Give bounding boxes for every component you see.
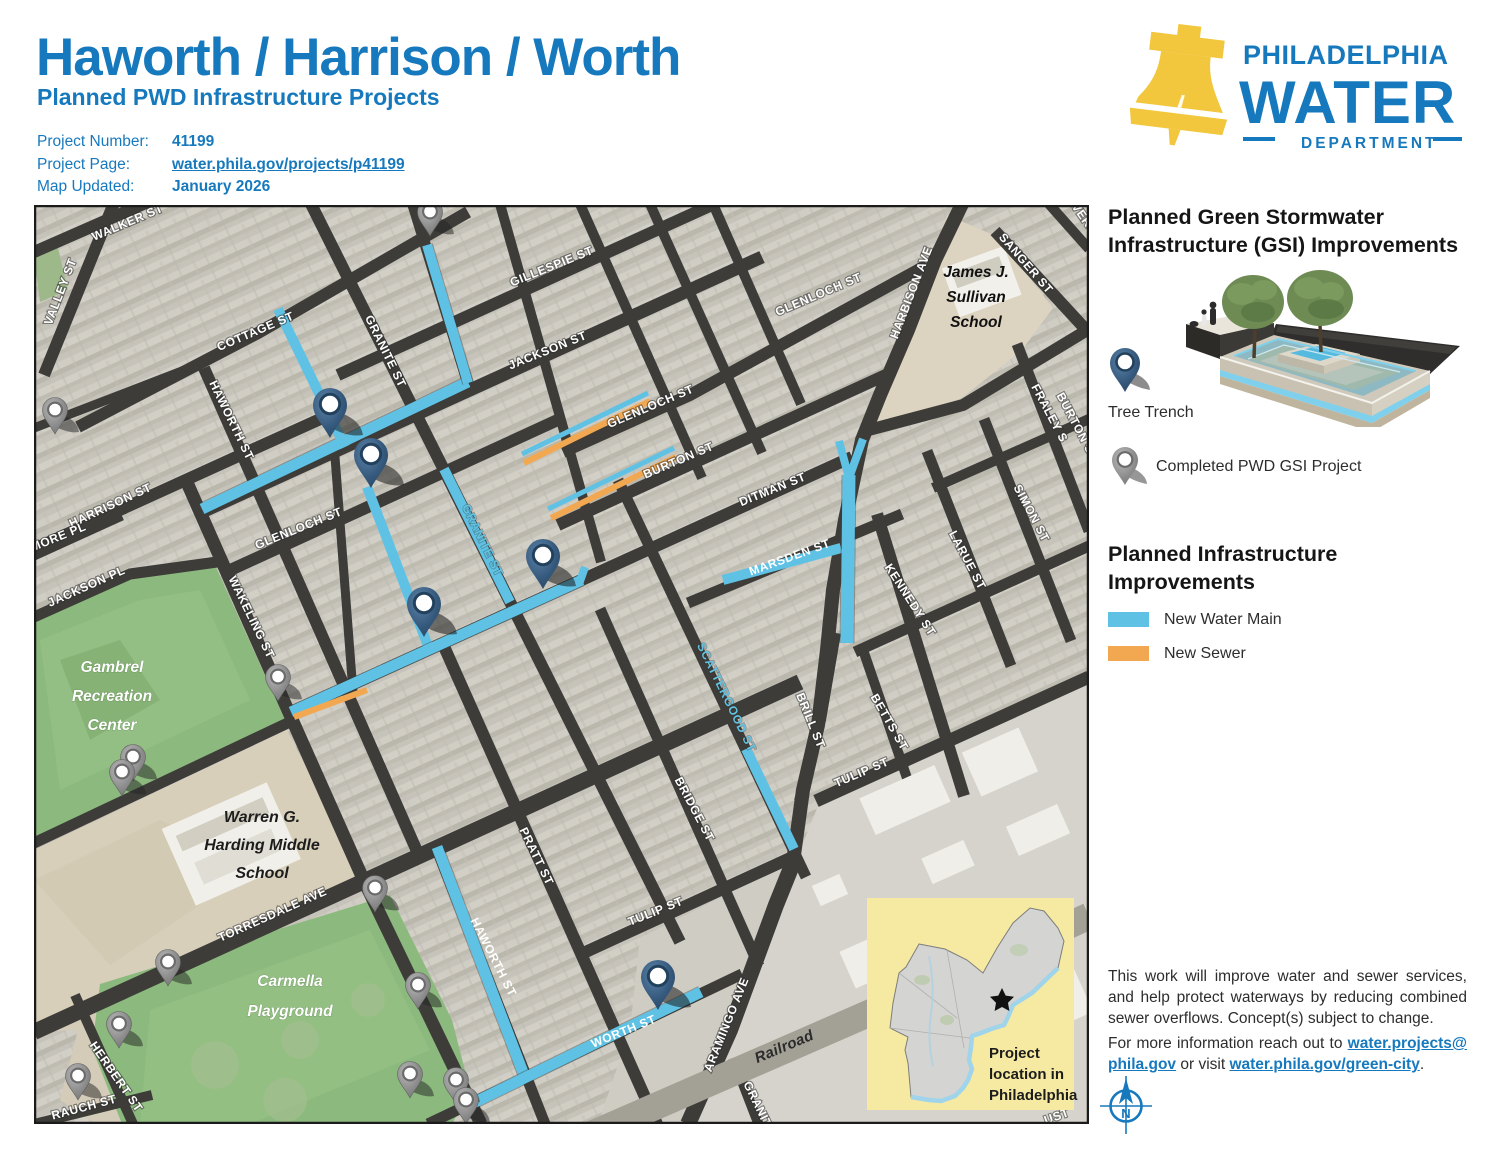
svg-text:Gambrel: Gambrel	[81, 659, 145, 676]
svg-text:Center: Center	[87, 717, 137, 734]
svg-text:N: N	[1121, 1106, 1130, 1121]
svg-text:PHILADELPHIA: PHILADELPHIA	[1243, 40, 1449, 70]
svg-text:Playground: Playground	[247, 1003, 333, 1020]
svg-text:Warren G.: Warren G.	[224, 809, 300, 826]
svg-text:Sullivan: Sullivan	[946, 289, 1005, 306]
svg-text:James J.: James J.	[943, 264, 1009, 281]
svg-text:Harding Middle: Harding Middle	[204, 837, 320, 854]
svg-text:Carmella: Carmella	[257, 973, 323, 990]
svg-text:Recreation: Recreation	[72, 688, 152, 705]
svg-text:School: School	[950, 314, 1002, 331]
svg-text:DEPARTMENT: DEPARTMENT	[1301, 135, 1438, 152]
svg-text:School: School	[235, 865, 289, 882]
svg-text:Philadelphia: Philadelphia	[989, 1087, 1078, 1104]
svg-text:location in: location in	[989, 1066, 1064, 1083]
svg-text:WATER: WATER	[1239, 69, 1456, 136]
svg-text:Project: Project	[989, 1045, 1040, 1062]
